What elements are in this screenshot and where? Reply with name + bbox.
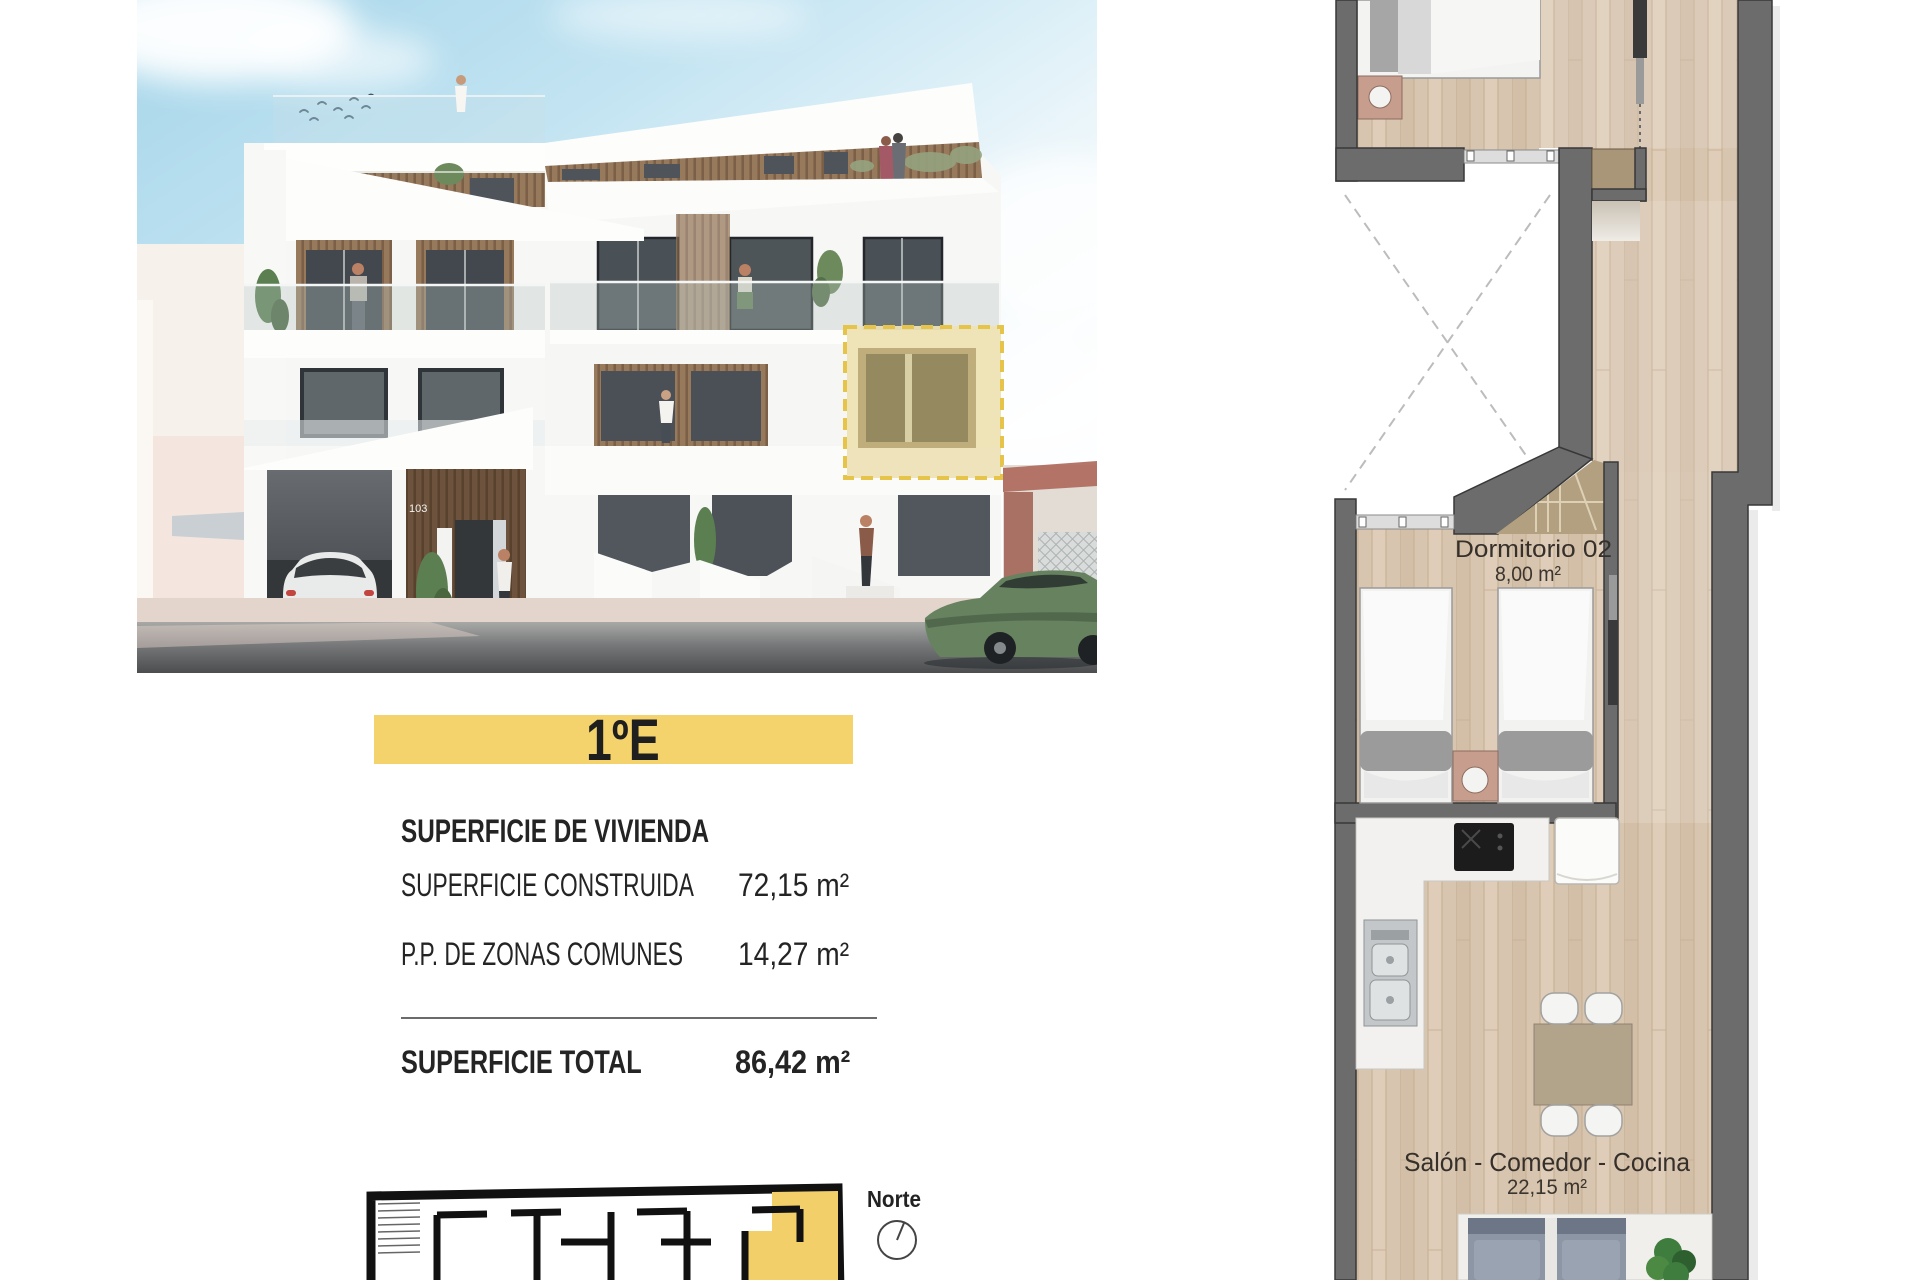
svg-text:Dormitorio 02: Dormitorio 02 bbox=[1455, 536, 1612, 563]
svg-text:8,00 m²: 8,00 m² bbox=[1495, 563, 1561, 586]
svg-text:22,15 m²: 22,15 m² bbox=[1507, 1176, 1587, 1199]
svg-text:Salón - Comedor - Cocina: Salón - Comedor - Cocina bbox=[1404, 1147, 1691, 1177]
svg-text:103: 103 bbox=[409, 503, 427, 515]
svg-text:Norte: Norte bbox=[867, 1186, 921, 1212]
